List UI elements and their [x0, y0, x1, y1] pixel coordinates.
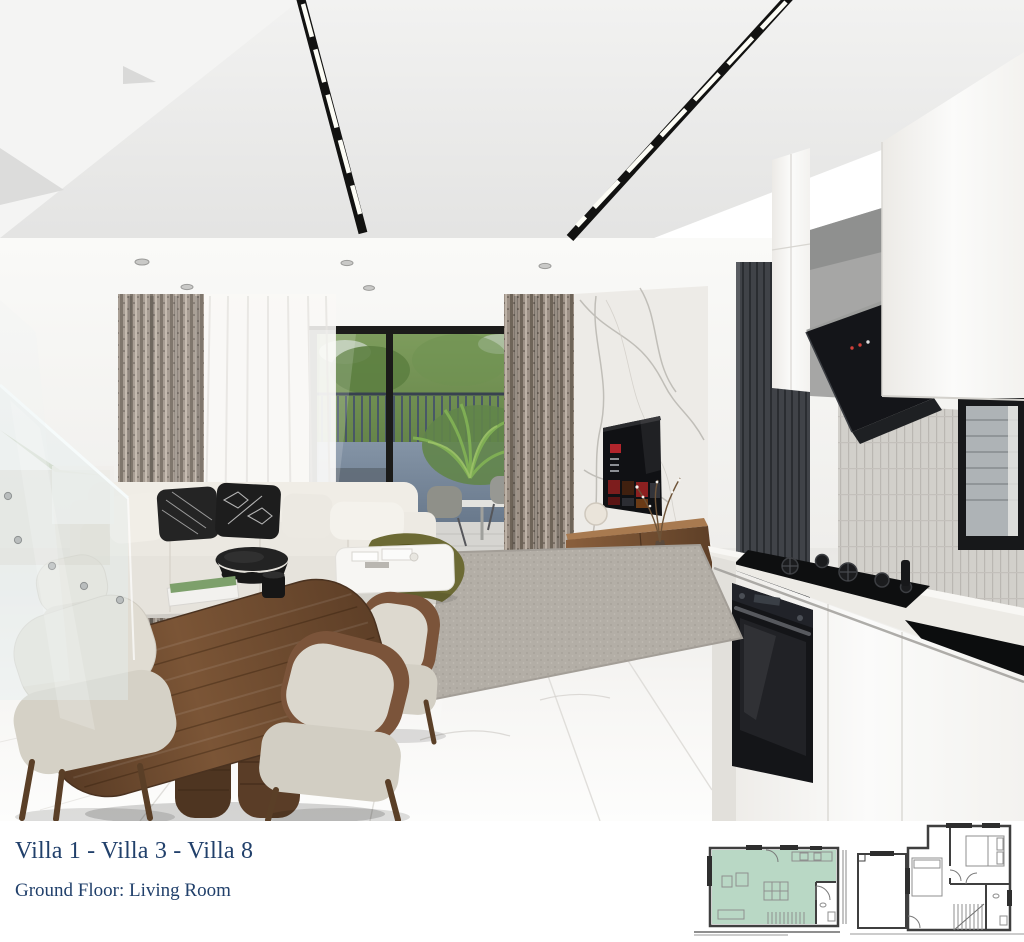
interior-render-image	[0, 0, 1024, 821]
interior-walls	[950, 828, 1010, 930]
ground-floor-plan	[688, 834, 852, 938]
tv-app-logo	[610, 444, 621, 453]
page-subtitle: Ground Floor: Living Room	[15, 880, 253, 902]
page-title: Villa 1 - Villa 3 - Villa 8	[15, 838, 253, 864]
caption-block: Villa 1 - Villa 3 - Villa 8 Ground Floor…	[15, 838, 253, 902]
brochure-page: Villa 1 - Villa 3 - Villa 8 Ground Floor…	[0, 0, 1024, 942]
upper-floor-plan	[850, 820, 1024, 940]
faucet	[901, 560, 910, 586]
floor-plan-thumbnails	[684, 820, 1024, 942]
tv	[603, 416, 662, 516]
kitchen-window	[958, 398, 1024, 550]
beds	[912, 836, 1004, 896]
interior-render-svg	[0, 0, 1024, 821]
terrace	[858, 854, 906, 928]
oven	[732, 583, 813, 783]
window-marks	[870, 823, 1012, 906]
plan-stairs	[954, 904, 984, 930]
sphere-lamp	[585, 503, 607, 525]
bathroom-walls	[816, 882, 836, 924]
